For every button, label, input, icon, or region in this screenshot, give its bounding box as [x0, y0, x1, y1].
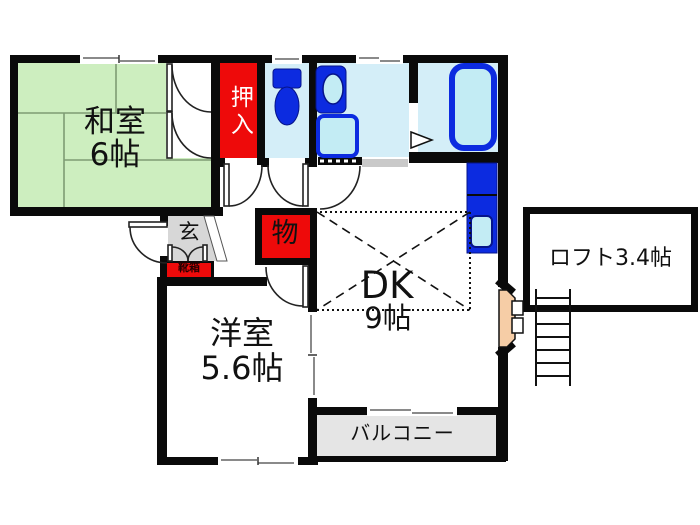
wall-yoshitsu-left — [157, 277, 167, 465]
label-loft: ロフト3.4帖 — [531, 215, 690, 303]
wall-oshiire-east — [257, 55, 265, 165]
entrance-step-1 — [512, 301, 523, 315]
wall-bath-west — [409, 55, 418, 103]
yoshitsu-door-leaf — [303, 266, 308, 307]
label-yoshitsu: 洋室 5.6帖 — [172, 316, 312, 386]
wall-right-lower — [498, 347, 508, 461]
washing-machine-pan-icon — [318, 116, 357, 156]
wall-right-upper — [498, 55, 508, 287]
label-storage: 物 — [261, 219, 309, 248]
shoebox-door-leaf-1 — [168, 245, 172, 261]
toilet-door-arc — [268, 165, 303, 206]
wall-balcony-bottom — [313, 456, 506, 462]
entrance-bay — [498, 280, 523, 356]
entrance-door-leaf — [129, 222, 167, 227]
wall-divider-upper — [308, 265, 317, 312]
kitchen-sink-icon — [471, 216, 492, 247]
wall-hall-a — [211, 158, 225, 167]
entrance-step-2 — [512, 318, 523, 333]
wall-washitsu-bottom — [10, 207, 223, 216]
wall-bath-bottom — [409, 152, 508, 163]
closet-door-leaf — [224, 164, 229, 206]
label-washitsu: 和室 6帖 — [45, 106, 185, 173]
toilet-door-leaf — [303, 164, 308, 206]
bathtub-icon — [452, 66, 494, 148]
toilet-tank-icon — [273, 69, 301, 88]
label-dk-area: 9帖 — [338, 303, 438, 334]
label-oshiire: 押入 — [221, 66, 257, 158]
washitsu-door-leaf-1 — [167, 64, 172, 111]
yoshitsu-door-arc — [266, 267, 303, 306]
label-washitsu-area: 6帖 — [45, 139, 185, 172]
wall-yoshitsu-top — [157, 277, 267, 286]
label-yoshitsu-area: 5.6帖 — [172, 351, 312, 386]
bath-step — [362, 159, 408, 167]
wall-washitsu-east — [211, 55, 220, 216]
toilet-bowl-icon — [275, 87, 299, 125]
label-washitsu-name: 和室 — [45, 106, 185, 139]
sink-basin-icon — [323, 74, 343, 104]
washroom-door-arc — [320, 166, 360, 209]
shoebox-door-leaf-2 — [203, 245, 207, 261]
label-yoshitsu-name: 洋室 — [172, 316, 312, 351]
label-shoebox: 靴箱 — [165, 262, 213, 274]
closet-door-arc — [229, 165, 262, 206]
label-balcony: バルコニー — [325, 423, 480, 445]
wall-left — [10, 55, 18, 216]
floor-plan: 和室 6帖 押入 玄 靴箱 物 DK 9帖 洋室 5.6帖 ロフト3.4帖 バル… — [0, 0, 700, 525]
label-dk: DK — [338, 266, 436, 306]
label-genkan: 玄 — [168, 221, 210, 244]
